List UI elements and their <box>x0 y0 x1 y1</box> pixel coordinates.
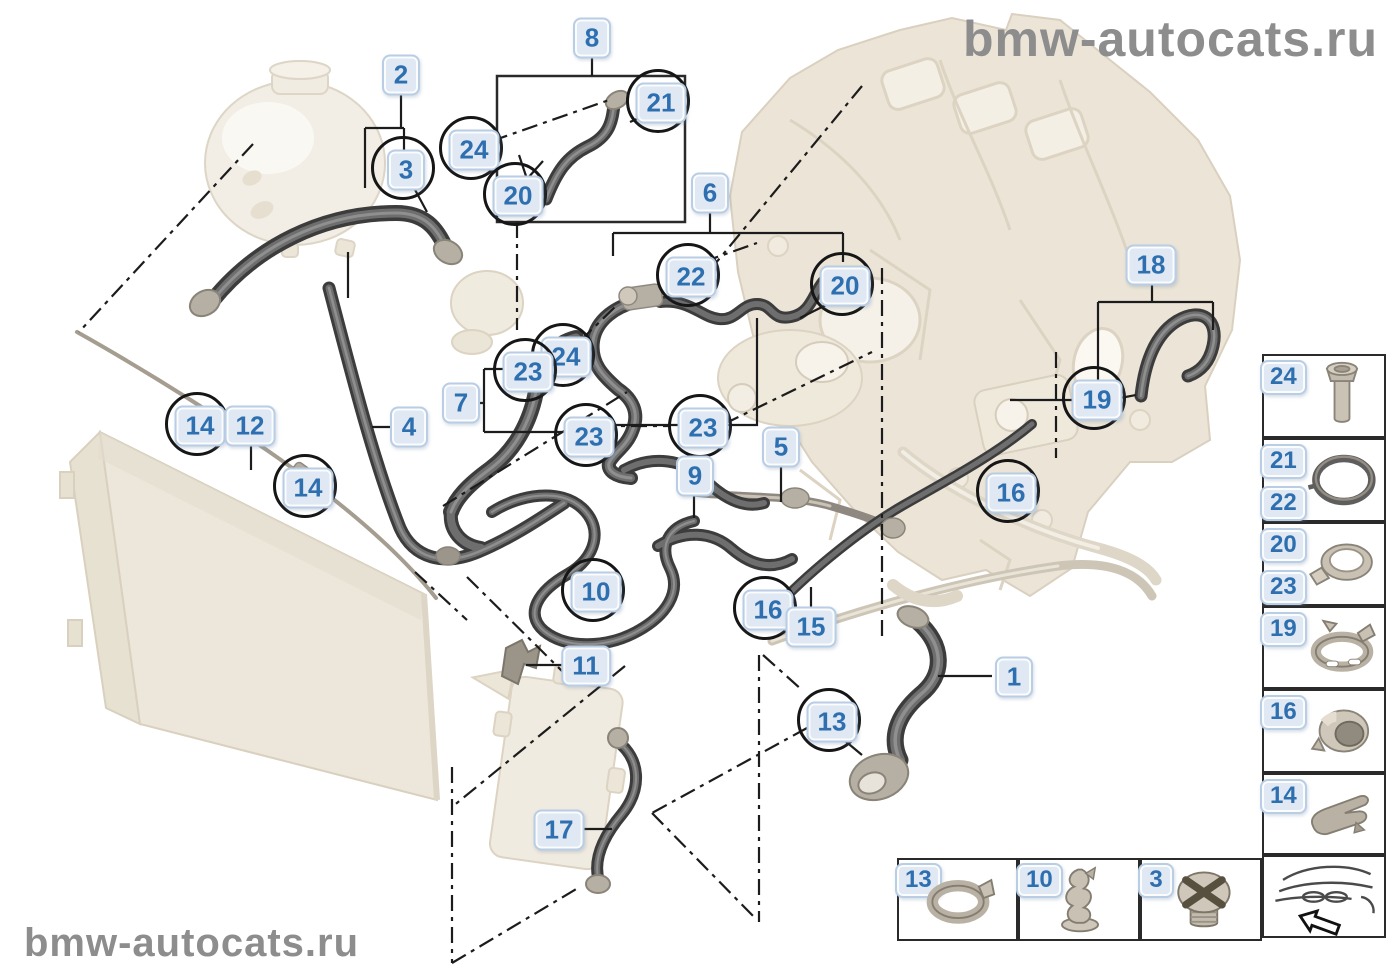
callout-11-26[interactable]: 11 <box>561 646 611 687</box>
spring-band-clamp-icon <box>1300 608 1384 687</box>
callout-15-25[interactable]: 15 <box>786 607 837 648</box>
phillips-screw-icon <box>1145 860 1260 939</box>
sidebar-cell-14[interactable]: 14 <box>1262 773 1386 855</box>
callout-13-28[interactable]: 13 <box>807 702 858 743</box>
thermostat-housing <box>718 330 862 426</box>
callout-8-1[interactable]: 8 <box>573 18 611 59</box>
callout-16-22[interactable]: 16 <box>986 473 1037 514</box>
callout-23-13[interactable]: 23 <box>564 417 615 458</box>
sidebar-cell-16[interactable]: 16 <box>1262 689 1386 773</box>
sidebar-cell-car[interactable] <box>1262 855 1386 938</box>
callout-21-2[interactable]: 21 <box>636 83 687 124</box>
retaining-clip-icon <box>1023 860 1138 939</box>
callout-20-8[interactable]: 20 <box>820 266 871 307</box>
callout-9-20[interactable]: 9 <box>676 456 714 497</box>
bottom-legend-cell-3[interactable]: 3 <box>1140 858 1262 941</box>
sidebar-cell-20-23[interactable]: 2023 <box>1262 522 1386 606</box>
car-direction-icon <box>1262 857 1384 936</box>
spring-clip-icon <box>1300 775 1384 853</box>
callout-23-11[interactable]: 23 <box>503 352 554 393</box>
watermark-bottom-left: bmw-autocats.ru <box>24 921 359 966</box>
callout-7-12[interactable]: 7 <box>442 383 480 424</box>
watermark-top-right: bmw-autocats.ru <box>963 10 1378 68</box>
hose-clamp-icon <box>1300 524 1384 604</box>
callout-19-15[interactable]: 19 <box>1072 380 1123 421</box>
sidebar-cell-24[interactable]: 24 <box>1262 354 1386 438</box>
callout-14-21[interactable]: 14 <box>283 468 334 509</box>
callout-4-18[interactable]: 4 <box>390 407 428 448</box>
callout-22-7[interactable]: 22 <box>666 257 717 298</box>
bottom-legend-cell-13[interactable]: 13 <box>897 858 1018 941</box>
callout-1-27[interactable]: 1 <box>995 657 1033 698</box>
sidebar-cell-19[interactable]: 19 <box>1262 606 1386 689</box>
band-clamp-icon <box>901 860 1016 939</box>
plastic-collar-icon <box>1300 691 1384 771</box>
callout-3-4[interactable]: 3 <box>387 150 425 191</box>
callout-2-0[interactable]: 2 <box>382 55 420 96</box>
callout-10-23[interactable]: 10 <box>571 572 622 613</box>
bolt-icon <box>1300 356 1384 436</box>
bottom-legend-cell-10[interactable]: 10 <box>1018 858 1140 941</box>
callout-17-29[interactable]: 17 <box>534 810 585 851</box>
sidebar-cell-21-22[interactable]: 2122 <box>1262 438 1386 522</box>
callout-20-5[interactable]: 20 <box>493 176 544 217</box>
callout-14-16[interactable]: 14 <box>175 406 226 447</box>
callout-6-6[interactable]: 6 <box>691 173 729 214</box>
callout-12-17[interactable]: 12 <box>225 406 276 447</box>
callout-5-19[interactable]: 5 <box>762 427 800 468</box>
callout-23-14[interactable]: 23 <box>678 408 729 449</box>
callout-24-3[interactable]: 24 <box>449 130 500 171</box>
parts-diagram-cooling-system: bmw-autocats.ru bmw-autocats.ru 28212432… <box>0 0 1400 980</box>
callout-18-9[interactable]: 18 <box>1126 245 1177 286</box>
o-ring-icon <box>1300 440 1384 520</box>
